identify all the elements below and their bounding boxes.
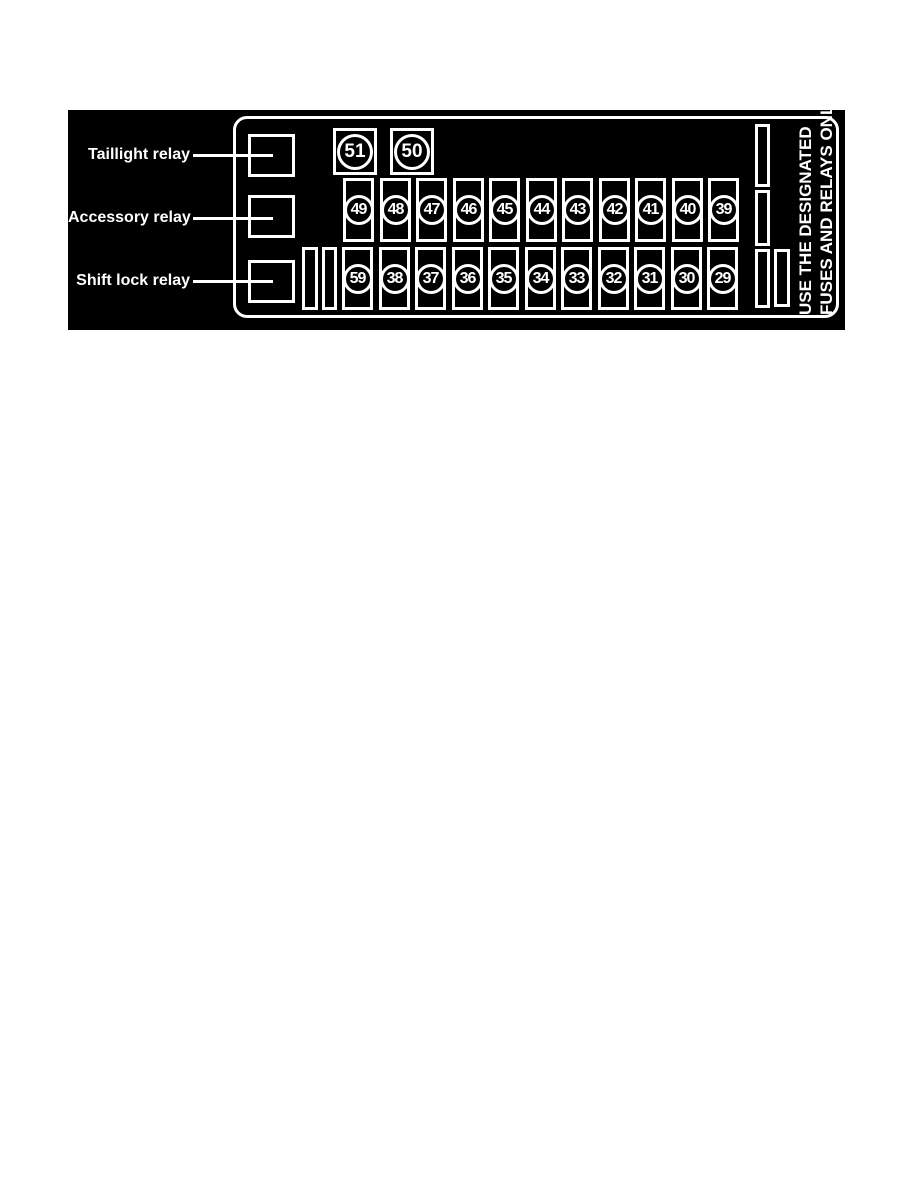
fuse-51: 51: [333, 128, 377, 175]
empty-slot: [302, 247, 318, 310]
fuse-number-circle: 39: [709, 195, 739, 225]
fuse-number-circle: 29: [708, 264, 738, 294]
fuse-number-circle: 51: [337, 134, 373, 170]
empty-slot: [755, 124, 770, 187]
fuse-42: 42: [599, 178, 630, 242]
fuse-number-circle: 44: [527, 195, 557, 225]
empty-slot: [755, 190, 770, 246]
fuse-number-circle: 40: [673, 195, 703, 225]
fuse-50: 50: [390, 128, 434, 175]
fuse-39: 39: [708, 178, 739, 242]
fuse-31: 31: [634, 247, 665, 310]
fuse-number-circle: 47: [417, 195, 447, 225]
fuse-number-circle: 46: [454, 195, 484, 225]
fuse-number-circle: 50: [394, 134, 430, 170]
fuse-number-circle: 37: [416, 264, 446, 294]
fuse-48: 48: [380, 178, 411, 242]
fuse-36: 36: [452, 247, 483, 310]
document-page: Taillight relay Accessory relay Shift lo…: [0, 0, 918, 1188]
fuse-59: 59: [342, 247, 373, 310]
fuse-number-circle: 31: [635, 264, 665, 294]
fuse-number-circle: 49: [344, 195, 374, 225]
fuse-47: 47: [416, 178, 447, 242]
fuse-number-circle: 45: [490, 195, 520, 225]
fuse-number-circle: 42: [600, 195, 630, 225]
fuse-40: 40: [672, 178, 703, 242]
fuse-35: 35: [488, 247, 519, 310]
fuse-46: 46: [453, 178, 484, 242]
fuse-32: 32: [598, 247, 629, 310]
fuse-number-circle: 59: [343, 264, 373, 294]
fuse-number-circle: 43: [563, 195, 593, 225]
fuse-38: 38: [379, 247, 410, 310]
empty-slot: [755, 249, 770, 308]
empty-slot: [774, 249, 790, 307]
fuse-44: 44: [526, 178, 557, 242]
fuse-41: 41: [635, 178, 666, 242]
fuse-43: 43: [562, 178, 593, 242]
fuse-number-circle: 48: [381, 195, 411, 225]
fuse-49: 49: [343, 178, 374, 242]
fuse-33: 33: [561, 247, 592, 310]
accessory-relay-label: Accessory relay: [68, 208, 190, 228]
fuse-37: 37: [415, 247, 446, 310]
notice-line-1: USE THE DESIGNATED: [795, 115, 816, 315]
fuse-number-circle: 34: [526, 264, 556, 294]
fuse-34: 34: [525, 247, 556, 310]
fuse-number-circle: 41: [636, 195, 666, 225]
designated-fuses-notice: USE THE DESIGNATED FUSES AND RELAYS ONLY: [795, 115, 837, 315]
fuse-box-diagram-panel: Taillight relay Accessory relay Shift lo…: [68, 110, 845, 330]
fuse-number-circle: 35: [489, 264, 519, 294]
shift-lock-relay-label: Shift lock relay: [68, 271, 190, 291]
taillight-relay-label: Taillight relay: [68, 145, 190, 165]
fuse-30: 30: [671, 247, 702, 310]
empty-slot: [322, 247, 337, 310]
fuse-number-circle: 38: [380, 264, 410, 294]
notice-line-2: FUSES AND RELAYS ONLY: [816, 115, 837, 315]
fuse-29: 29: [707, 247, 738, 310]
fuse-number-circle: 30: [672, 264, 702, 294]
fuse-number-circle: 33: [562, 264, 592, 294]
fuse-number-circle: 36: [453, 264, 483, 294]
fuse-45: 45: [489, 178, 520, 242]
fuse-number-circle: 32: [599, 264, 629, 294]
